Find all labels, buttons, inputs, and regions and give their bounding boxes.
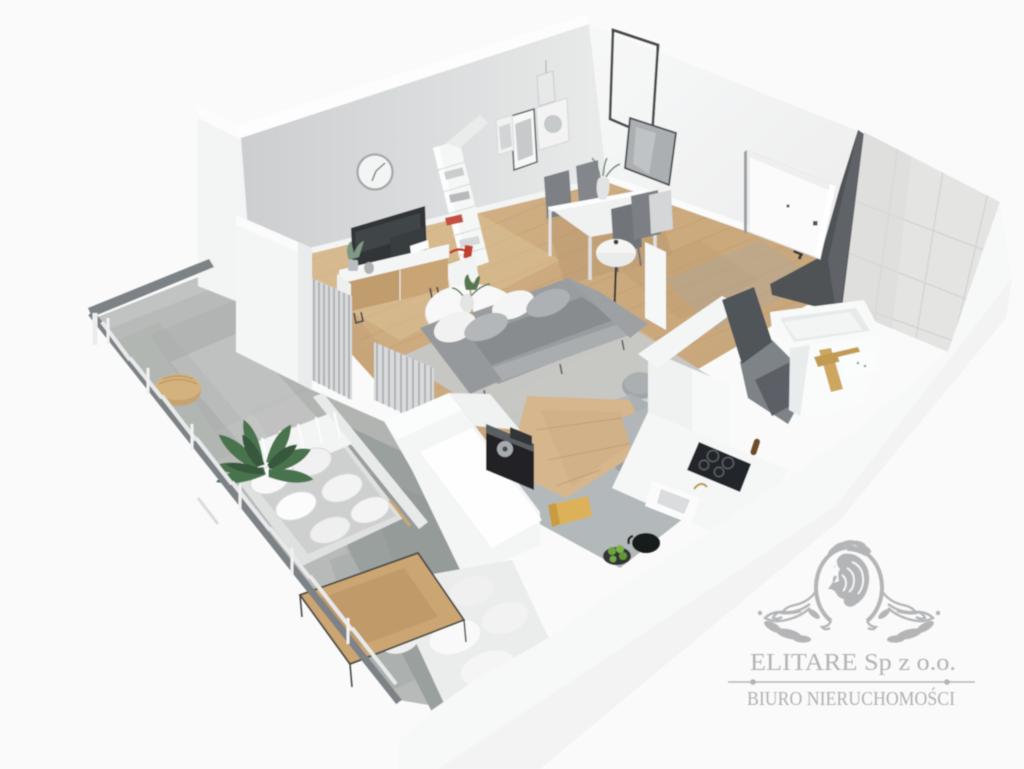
svg-text:ELITARE Sp z o.o.: ELITARE Sp z o.o. [750, 650, 956, 676]
svg-text:BIURO NIERUCHOMOŚCI: BIURO NIERUCHOMOŚCI [747, 686, 955, 710]
